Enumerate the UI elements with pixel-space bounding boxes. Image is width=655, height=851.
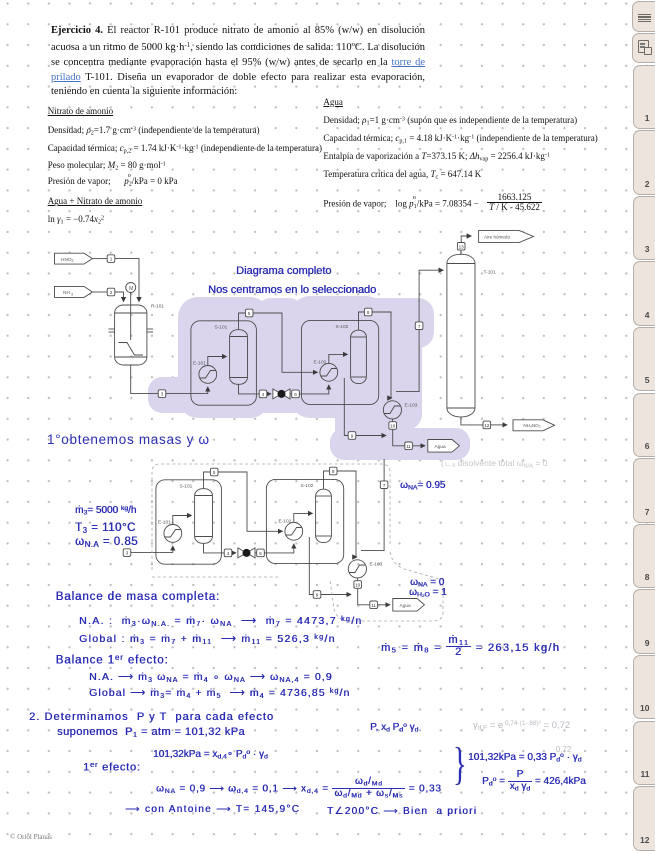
- svg-text:7: 7: [418, 324, 421, 329]
- svg-text:S-102: S-102: [336, 324, 349, 330]
- svg-text:5: 5: [248, 311, 251, 316]
- svg-text:11: 11: [406, 444, 411, 449]
- svg-text:Aire húmedo: Aire húmedo: [484, 234, 510, 239]
- svg-text:S-101: S-101: [215, 325, 228, 331]
- svg-text:3: 3: [161, 392, 164, 397]
- svg-text:13: 13: [459, 244, 465, 249]
- svg-text:3: 3: [71, 292, 73, 296]
- svg-text:8: 8: [367, 310, 370, 315]
- svg-text:9: 9: [351, 434, 354, 439]
- svg-text:R-101: R-101: [151, 304, 164, 310]
- svg-text:NH₄NO₃: NH₄NO₃: [523, 423, 540, 428]
- svg-text:E-103: E-103: [405, 403, 418, 409]
- svg-text:4: 4: [262, 392, 265, 397]
- svg-text:E-102: E-102: [314, 360, 327, 366]
- svg-text:10: 10: [390, 424, 396, 429]
- svg-text:NH: NH: [63, 290, 70, 296]
- svg-text:3: 3: [72, 259, 74, 263]
- svg-text:HNO: HNO: [61, 257, 72, 263]
- svg-text:12: 12: [484, 423, 490, 428]
- svg-text:1: 1: [110, 257, 113, 262]
- svg-text:T-101: T-101: [484, 270, 497, 276]
- svg-text:2: 2: [110, 290, 113, 295]
- svg-text:M: M: [129, 286, 134, 292]
- svg-text:Agua: Agua: [435, 444, 447, 450]
- svg-text:E-101: E-101: [193, 361, 206, 367]
- svg-text:6: 6: [294, 392, 297, 397]
